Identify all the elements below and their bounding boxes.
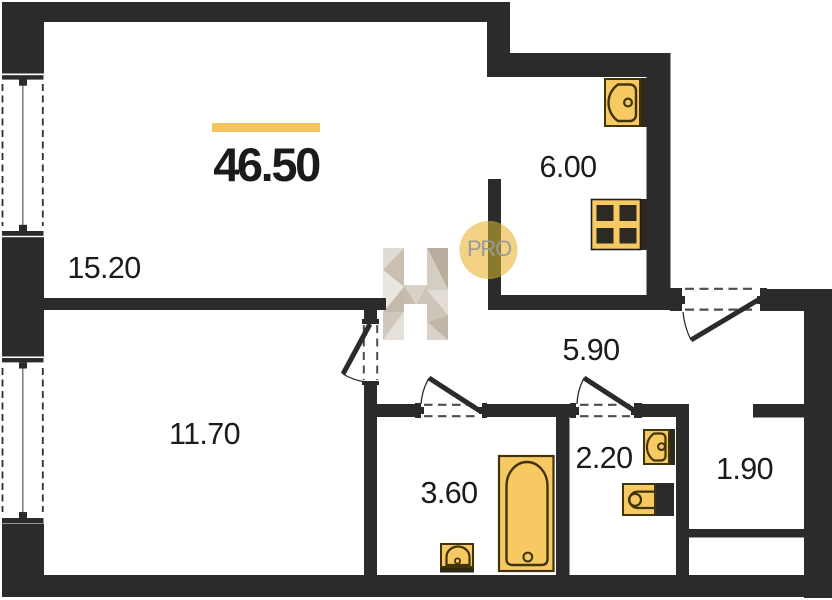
svg-text:6.00: 6.00 <box>540 150 597 184</box>
svg-text:11.70: 11.70 <box>169 417 240 451</box>
svg-text:46.50: 46.50 <box>213 138 320 191</box>
svg-text:5.90: 5.90 <box>563 333 620 367</box>
svg-text:1.90: 1.90 <box>716 452 773 486</box>
svg-text:3.60: 3.60 <box>421 476 478 510</box>
svg-text:2.20: 2.20 <box>576 441 633 475</box>
svg-text:PRO: PRO <box>467 236 512 261</box>
svg-text:15.20: 15.20 <box>67 251 140 285</box>
